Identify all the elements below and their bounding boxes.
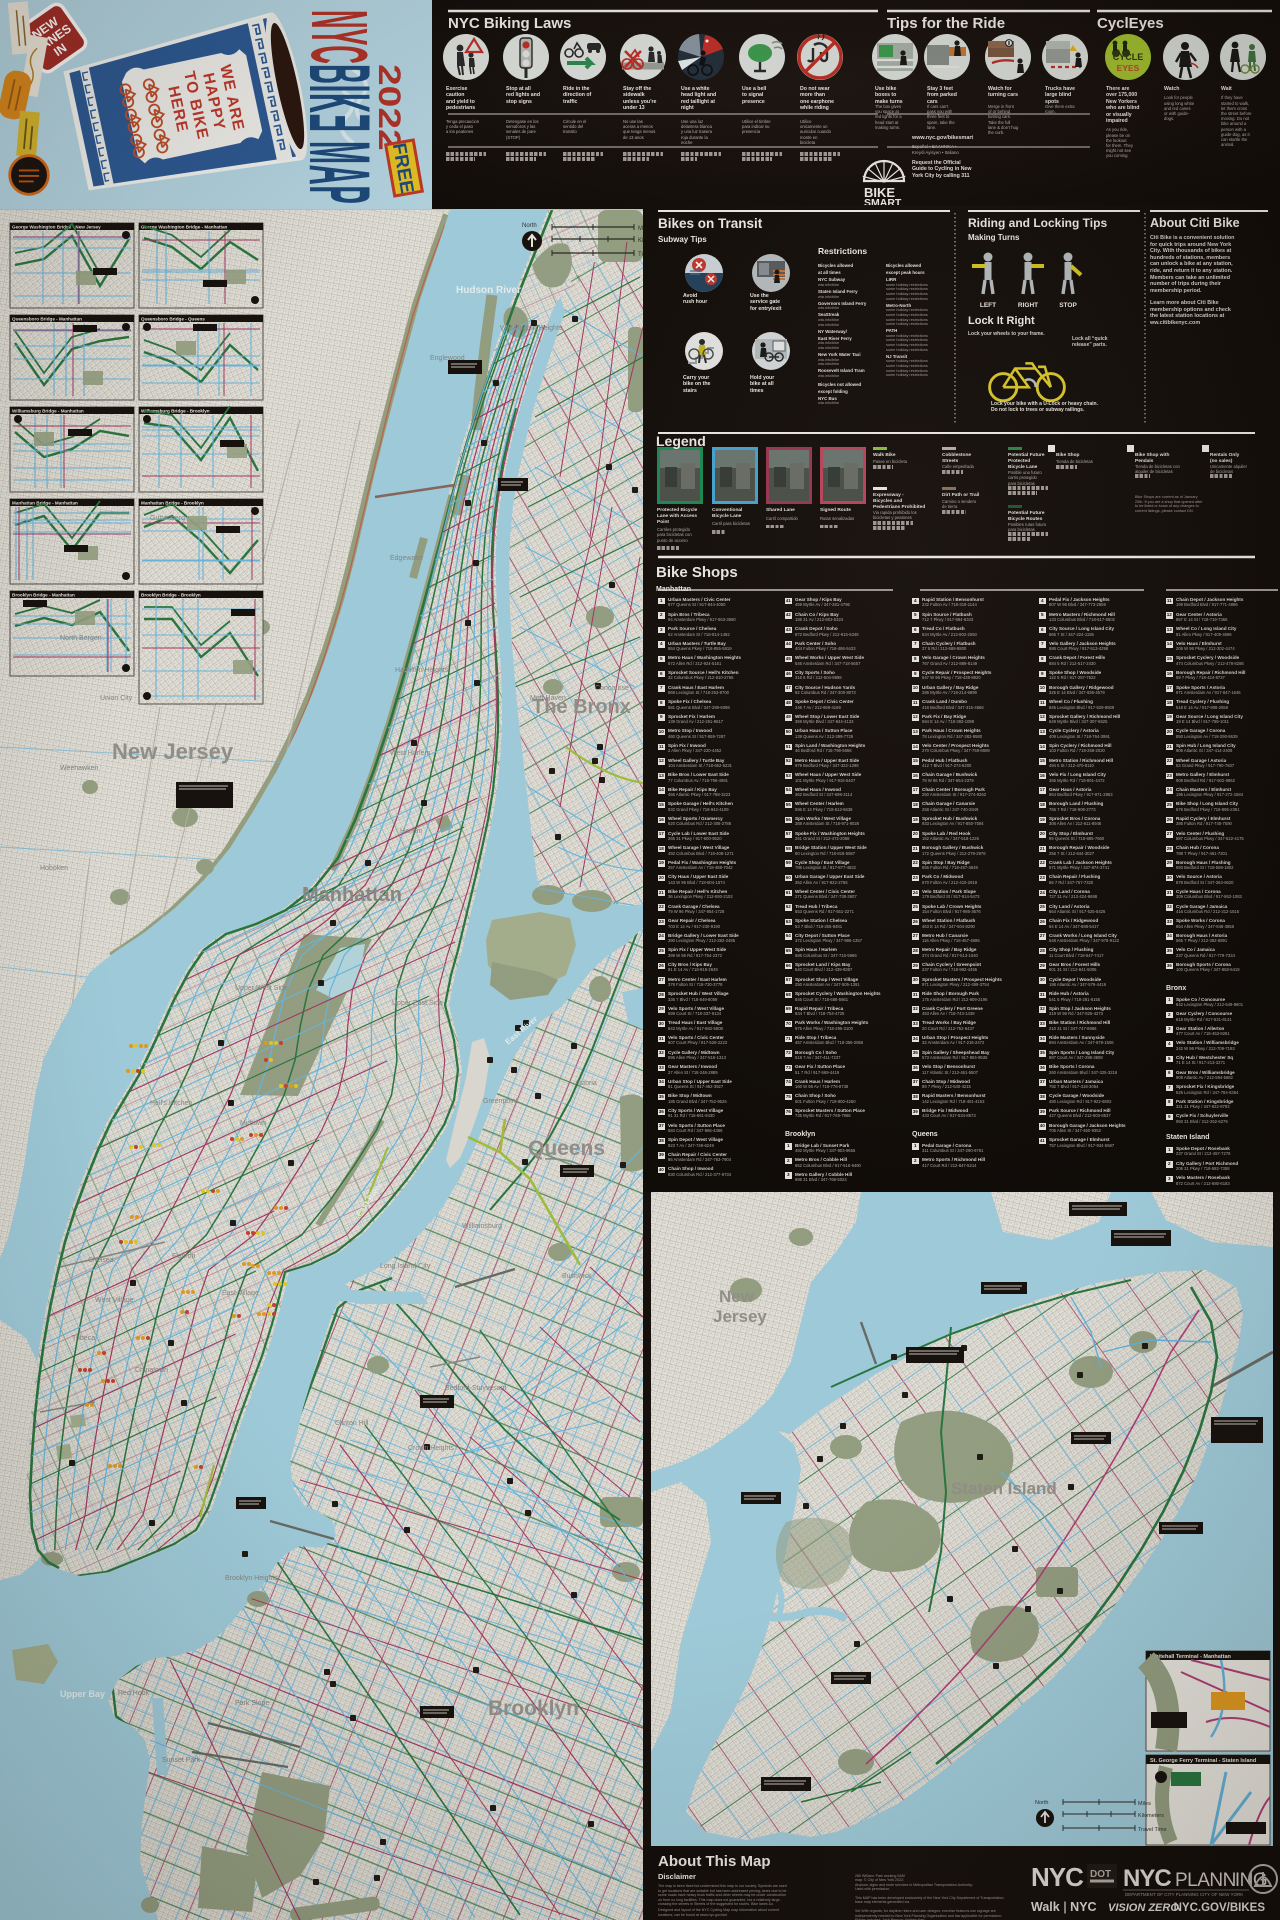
svg-text:North: North [522, 223, 537, 229]
svg-text:Upper Bay: Upper Bay [60, 1689, 105, 1699]
svg-text:Hamilton Heights: Hamilton Heights [395, 667, 449, 674]
svg-text:Jersey: Jersey [713, 1307, 767, 1326]
svg-text:Red Hook: Red Hook [118, 1690, 150, 1697]
svg-text:Upper West Side: Upper West Side [235, 985, 288, 992]
svg-text:BIKƎ MAP: BIKƎ MAP [291, 64, 388, 204]
svg-text:Mott Haven: Mott Haven [530, 695, 566, 702]
svg-text:Park Slope: Park Slope [235, 1700, 269, 1707]
svg-text:North: North [1035, 1800, 1048, 1806]
svg-text:Washington Heights: Washington Heights [500, 325, 563, 332]
svg-text:Travel Time: Travel Time [1138, 1827, 1167, 1833]
svg-text:Miles: Miles [1138, 1801, 1151, 1807]
svg-text:Hudson River: Hudson River [456, 285, 521, 296]
svg-text:New Jersey: New Jersey [112, 739, 234, 764]
svg-text:Walk | NYC: Walk | NYC [1031, 1900, 1097, 1914]
svg-text:Queensboro Bridge - Queens: Queensboro Bridge - Queens [141, 316, 205, 321]
svg-text:Brooklyn Bridge - Brooklyn: Brooklyn Bridge - Brooklyn [141, 592, 201, 597]
svg-text:Chinatown: Chinatown [135, 1367, 168, 1374]
svg-text:LEFT: LEFT [980, 302, 996, 309]
svg-text:Tribeca: Tribeca [72, 1335, 95, 1342]
svg-text:Hoboken: Hoboken [40, 865, 68, 872]
svg-text:Midtown: Midtown [240, 1120, 266, 1127]
svg-text:Crown Heights: Crown Heights [408, 1445, 454, 1452]
svg-text:Bushwick: Bushwick [562, 1273, 592, 1280]
svg-text:East Village: East Village [222, 1290, 259, 1297]
svg-text:New: New [719, 1287, 755, 1306]
svg-text:Long Island City: Long Island City [380, 1263, 431, 1270]
svg-text:NYC: NYC [294, 10, 383, 64]
svg-text:Englewood: Englewood [430, 355, 465, 362]
svg-text:Chelsea: Chelsea [88, 1257, 114, 1264]
svg-text:DOT: DOT [1090, 1869, 1111, 1880]
svg-text:Greenpoint: Greenpoint [483, 1098, 518, 1105]
svg-text:Weehawken: Weehawken [60, 765, 99, 772]
svg-text:DEPARTMENT OF CITY PLANNING CI: DEPARTMENT OF CITY PLANNING CITY OF NEW … [1125, 1892, 1243, 1897]
svg-text:St. George Ferry Terminal - St: St. George Ferry Terminal - Staten Islan… [1150, 1758, 1256, 1764]
svg-text:Kilometers: Kilometers [1138, 1813, 1164, 1819]
svg-text:Edgewater: Edgewater [390, 555, 424, 562]
svg-text:Whitehall Terminal - Manhattan: Whitehall Terminal - Manhattan [1150, 1654, 1232, 1660]
svg-text:Bedford-Stuyvesant: Bedford-Stuyvesant [445, 1385, 507, 1392]
svg-text:West Harlem: West Harlem [390, 750, 430, 757]
svg-text:Brooklyn Bridge - Manhattan: Brooklyn Bridge - Manhattan [12, 592, 75, 597]
svg-text:Williamsburg: Williamsburg [462, 1223, 502, 1230]
svg-text:Upper East Side: Upper East Side [392, 1000, 443, 1007]
svg-text:RIGHT: RIGHT [1018, 302, 1038, 309]
svg-text:Brooklyn: Brooklyn [488, 1697, 579, 1720]
svg-text:Concourse: Concourse [595, 685, 629, 692]
svg-text:Hell’s Kitchen: Hell’s Kitchen [150, 1100, 192, 1107]
svg-text:EYES: EYES [1117, 63, 1140, 73]
svg-text:Clinton Hill: Clinton Hill [335, 1420, 369, 1427]
svg-text:Brooklyn Heights: Brooklyn Heights [225, 1575, 278, 1582]
svg-text:Williamsburg Bridge - Manhatta: Williamsburg Bridge - Manhattan [12, 408, 84, 413]
svg-text:Union City: Union City [100, 695, 133, 702]
svg-text:Sunset Park: Sunset Park [162, 1757, 201, 1764]
svg-text:Staten Island: Staten Island [951, 1479, 1057, 1498]
svg-text:Harlem: Harlem [400, 828, 423, 835]
svg-text:VISION ZERO: VISION ZERO [1108, 1902, 1179, 1914]
svg-text:George Washington Bridge - New: George Washington Bridge - New Jersey [12, 224, 101, 229]
svg-text:Manhattan: Manhattan [302, 884, 402, 906]
svg-text:West Village: West Village [95, 1297, 134, 1304]
svg-text:STOP: STOP [1059, 302, 1077, 309]
svg-text:NYC.GOV/BIKES: NYC.GOV/BIKES [1174, 1902, 1266, 1914]
svg-text:North Bergen: North Bergen [60, 635, 102, 642]
svg-text:Queensboro Bridge - Manhattan: Queensboro Bridge - Manhattan [12, 316, 82, 321]
svg-text:Astoria: Astoria [575, 1080, 597, 1087]
svg-text:Guttenberg: Guttenberg [150, 515, 185, 522]
svg-text:NYC: NYC [1031, 1862, 1084, 1892]
svg-text:NYC: NYC [1123, 1865, 1171, 1892]
svg-text:Queens: Queens [528, 1137, 605, 1160]
svg-text:Flatiron: Flatiron [172, 1253, 195, 1260]
